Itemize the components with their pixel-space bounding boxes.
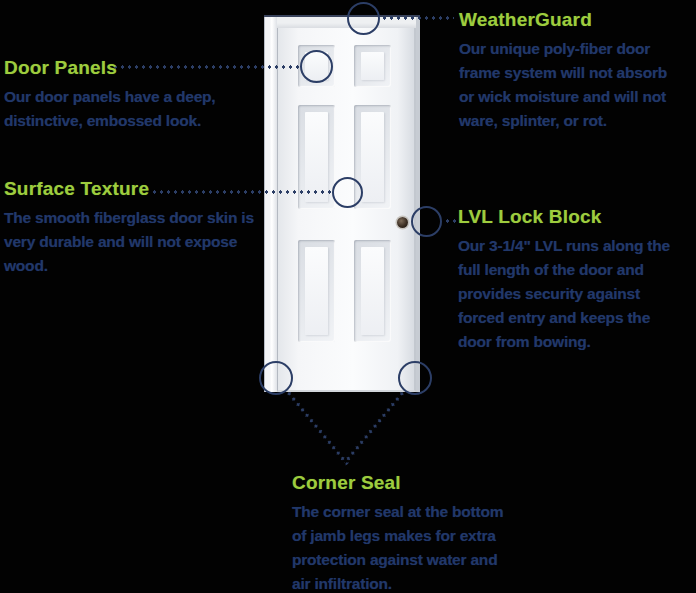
door-panel-bottom-right	[354, 240, 391, 342]
knob-bore-icon	[397, 217, 408, 228]
door-panels-text: distinctive, embossed look.	[4, 109, 215, 133]
leader-corner-seal-right	[343, 390, 405, 464]
callout-weatherguard: WeatherGuard Our unique poly-fiber door …	[459, 8, 667, 133]
weatherguard-text: ware, splinter, or rot.	[459, 109, 667, 133]
door-slab	[277, 28, 416, 392]
door-feature-diagram: Door Panels Our door panels have a deep,…	[0, 0, 696, 593]
surface-texture-title: Surface Texture	[4, 177, 254, 201]
callout-circle-lvl-lock-block	[411, 206, 442, 237]
callout-circle-door-panels	[300, 50, 333, 83]
leader-lvl-lock-block	[444, 219, 459, 223]
door-panels-title: Door Panels	[4, 56, 215, 80]
callout-corner-seal: Corner Seal The corner seal at the botto…	[292, 471, 503, 593]
corner-seal-title: Corner Seal	[292, 471, 503, 495]
corner-seal-text: The corner seal at the bottom	[292, 500, 503, 524]
weatherguard-text: frame system will not absorb	[459, 61, 667, 85]
door-panels-text: Our door panels have a deep,	[4, 85, 215, 109]
corner-seal-text: air infiltration.	[292, 572, 503, 593]
door-jamb-right	[416, 17, 420, 392]
lvl-lock-block-title: LVL Lock Block	[458, 205, 670, 229]
surface-texture-text: very durable and will not expose	[4, 230, 254, 254]
corner-seal-text: protection against water and	[292, 548, 503, 572]
door-panel-bottom-left	[298, 240, 335, 342]
leader-weatherguard	[381, 16, 454, 20]
lvl-lock-block-text: door from bowing.	[458, 330, 670, 354]
surface-texture-text: wood.	[4, 254, 254, 278]
corner-seal-text: of jamb legs makes for extra	[292, 524, 503, 548]
lvl-lock-block-text: forced entry and keeps the	[458, 306, 670, 330]
weatherguard-text: Our unique poly-fiber door	[459, 37, 667, 61]
lvl-lock-block-text: full length of the door and	[458, 258, 670, 282]
callout-circle-weatherguard	[347, 2, 380, 35]
callout-surface-texture: Surface Texture The smooth fiberglass do…	[4, 177, 254, 278]
callout-circle-surface-texture	[332, 177, 363, 208]
callout-lvl-lock-block: LVL Lock Block Our 3-1/4" LVL runs along…	[458, 205, 670, 354]
leader-corner-seal-left	[285, 390, 349, 466]
door-panel-top-right	[354, 45, 391, 87]
callout-door-panels: Door Panels Our door panels have a deep,…	[4, 56, 215, 133]
lvl-lock-block-text: provides security against	[458, 282, 670, 306]
lvl-lock-block-text: Our 3-1/4" LVL runs along the	[458, 234, 670, 258]
surface-texture-text: The smooth fiberglass door skin is	[4, 206, 254, 230]
door-jamb-left	[264, 17, 277, 392]
callout-circle-corner-seal-right	[398, 361, 432, 395]
weatherguard-title: WeatherGuard	[459, 8, 667, 32]
weatherguard-text: or wick moisture and will not	[459, 85, 667, 109]
callout-circle-corner-seal-left	[259, 361, 293, 395]
